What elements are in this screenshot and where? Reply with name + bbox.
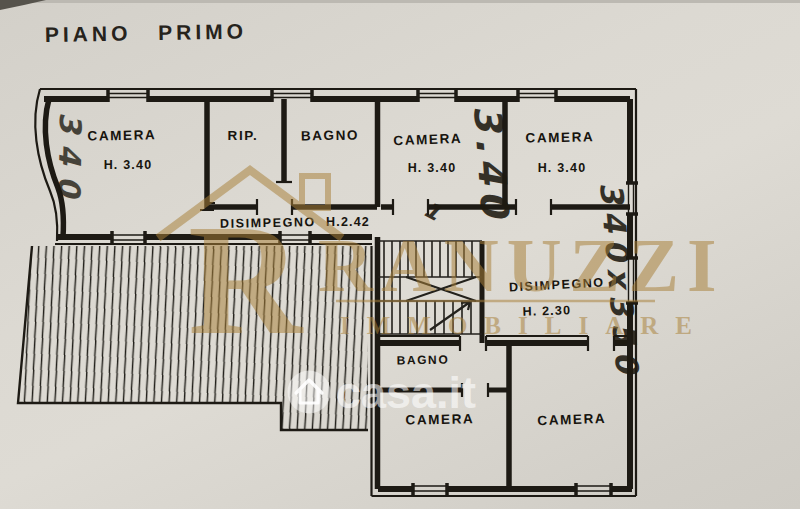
agency-name-text: RANUZZI <box>318 223 725 307</box>
height-label-camera-nw: H. 3.40 <box>104 158 153 172</box>
room-label-camera-se: CAMERA <box>537 411 606 428</box>
agency-logo-letter: R <box>188 192 304 367</box>
room-label-camera-mid: CAMERA <box>393 131 462 148</box>
room-label-camera-nw: CAMERA <box>87 127 156 143</box>
portal-watermark: casa.it <box>288 367 477 418</box>
agency-subtitle-text: IMMOBILIARE <box>340 312 709 339</box>
agency-watermark: R RANUZZI IMMOBILIARE <box>158 170 725 367</box>
dim-left-vertical: 340 <box>51 112 88 208</box>
room-label-camera-ne: CAMERA <box>525 129 594 145</box>
room-label-bagno-top: BAGNO <box>301 127 360 143</box>
scanned-floorplan-page: PIANO PRIMO <box>0 0 800 509</box>
scan-edge-artifacts <box>0 0 800 10</box>
room-label-bagno-bottom: BAGNO <box>396 353 449 368</box>
portal-name-text: casa.it <box>336 367 476 418</box>
pencil-mark: 1 <box>420 196 445 225</box>
house-circle-icon <box>288 371 331 414</box>
room-label-rip: RIP. <box>228 128 259 143</box>
height-label-camera-ne: H. 3.40 <box>538 161 587 175</box>
dim-mid-vertical: 3.40 <box>465 104 517 225</box>
floorplan-drawing: PIANO PRIMO <box>0 0 800 509</box>
page-title: PIANO PRIMO <box>45 19 248 46</box>
height-label-camera-mid: H. 3.40 <box>408 161 457 175</box>
